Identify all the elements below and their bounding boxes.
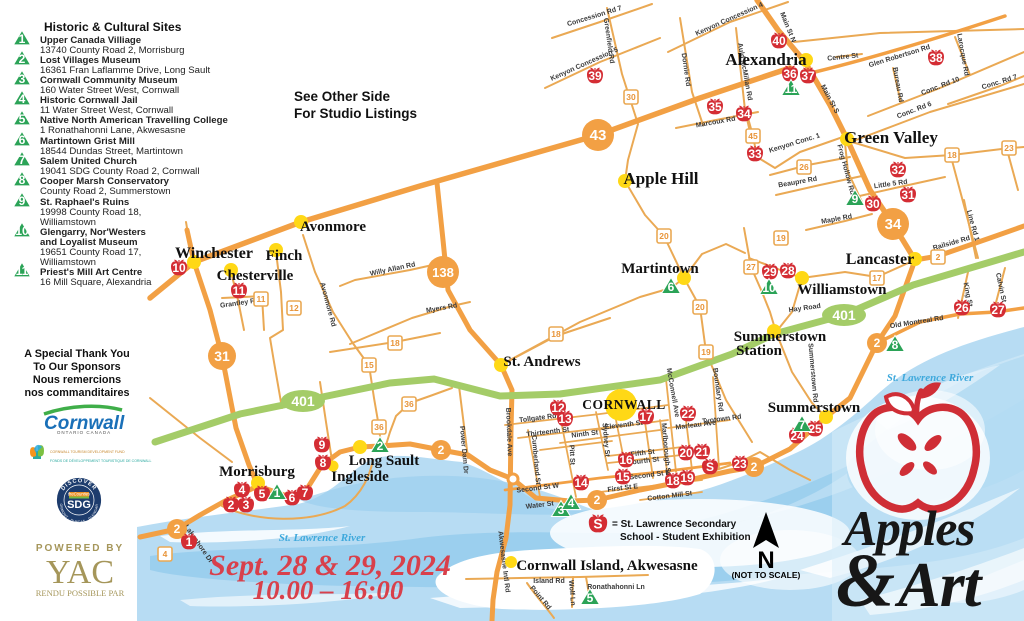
svg-text:Avonmore: Avonmore [300, 219, 366, 235]
svg-text:Williamstown: Williamstown [798, 282, 888, 298]
svg-text:1: 1 [19, 32, 26, 46]
svg-text:2: 2 [751, 460, 758, 474]
svg-text:2: 2 [594, 493, 601, 507]
svg-text:2: 2 [874, 336, 881, 350]
svg-text:26: 26 [955, 301, 969, 315]
svg-text:Winchester: Winchester [175, 245, 253, 262]
svg-text:Ronathahonni Ln: Ronathahonni Ln [587, 584, 645, 591]
svg-text:Station: Station [736, 343, 783, 359]
svg-text:19: 19 [680, 471, 694, 485]
svg-text:26: 26 [799, 162, 809, 172]
svg-text:St. Lawrence River: St. Lawrence River [887, 372, 974, 384]
svg-text:30: 30 [866, 197, 880, 211]
svg-text:Green Valley: Green Valley [844, 128, 938, 147]
svg-text:2: 2 [174, 522, 181, 536]
svg-text:17: 17 [639, 410, 653, 424]
svg-text:10: 10 [762, 281, 776, 295]
svg-text:138: 138 [432, 265, 454, 280]
svg-text:nos commanditaires: nos commanditaires [24, 387, 129, 399]
svg-text:Ingleside: Ingleside [331, 469, 389, 485]
svg-text:Nous remercions: Nous remercions [33, 374, 121, 386]
svg-text:FONDS DE DÉVELOPPEMENT TOURIST: FONDS DE DÉVELOPPEMENT TOURISTIQUE DE CO… [50, 458, 151, 463]
svg-text:2: 2 [377, 439, 384, 453]
svg-text:For Studio Listings: For Studio Listings [294, 106, 417, 121]
svg-text:11: 11 [233, 284, 246, 298]
svg-text:8: 8 [320, 456, 327, 470]
svg-text:5: 5 [19, 112, 26, 126]
svg-text:Summerstown: Summerstown [768, 400, 861, 416]
svg-text:39: 39 [588, 69, 602, 83]
svg-text:29: 29 [763, 265, 777, 279]
svg-text:Finch: Finch [266, 248, 303, 264]
svg-text:CORNWALL TOURISM DEVELOPMENT F: CORNWALL TOURISM DEVELOPMENT FUND [50, 450, 125, 454]
svg-text:2: 2 [228, 498, 235, 512]
svg-text:34: 34 [885, 216, 902, 233]
svg-text:23: 23 [733, 457, 747, 471]
svg-text:Martintown: Martintown [621, 261, 699, 277]
svg-text:31: 31 [214, 348, 230, 364]
svg-text:1 Ronathahonni Lane, Akwesasne: 1 Ronathahonni Lane, Akwesasne [40, 125, 186, 136]
svg-text:To Our Sponsors: To Our Sponsors [33, 361, 120, 373]
svg-text:5: 5 [587, 591, 594, 605]
svg-text:13: 13 [558, 412, 572, 426]
svg-text:20: 20 [695, 302, 705, 312]
svg-text:20: 20 [679, 446, 693, 460]
svg-text:SDG: SDG [67, 499, 91, 511]
svg-text:27: 27 [991, 303, 1005, 317]
svg-text:35: 35 [708, 100, 722, 114]
svg-text:10.00 – 16:00: 10.00 – 16:00 [253, 575, 404, 605]
svg-text:4: 4 [163, 549, 168, 559]
svg-text:A Special Thank You: A Special Thank You [24, 348, 129, 360]
svg-text:2: 2 [438, 443, 445, 457]
svg-text:18: 18 [947, 150, 957, 160]
svg-text:6: 6 [668, 280, 675, 294]
svg-text:S: S [593, 517, 602, 532]
svg-text:4: 4 [239, 483, 246, 497]
svg-text:33: 33 [748, 147, 762, 161]
svg-text:43: 43 [590, 127, 607, 144]
svg-text:CORNWALL: CORNWALL [582, 397, 666, 412]
svg-text:St. Andrews: St. Andrews [503, 354, 580, 370]
svg-text:37: 37 [801, 69, 815, 83]
svg-text:= St. Lawrence Secondary: = St. Lawrence Secondary [612, 519, 737, 530]
svg-text:21: 21 [695, 445, 709, 459]
svg-text:34: 34 [737, 107, 751, 121]
svg-text:401: 401 [291, 393, 315, 409]
svg-text:10: 10 [172, 261, 186, 275]
svg-text:7: 7 [799, 418, 806, 432]
svg-text:1: 1 [274, 486, 281, 500]
svg-text:Historic & Cultural Sites: Historic & Cultural Sites [44, 20, 182, 34]
svg-text:3: 3 [19, 72, 26, 86]
svg-text:8: 8 [19, 173, 26, 187]
svg-text:Chesterville: Chesterville [217, 268, 294, 284]
svg-text:30: 30 [626, 92, 636, 102]
svg-text:36: 36 [783, 67, 797, 81]
svg-text:38: 38 [929, 51, 943, 65]
svg-text:15: 15 [364, 360, 374, 370]
svg-text:Long Sault: Long Sault [349, 453, 419, 469]
svg-text:Apple Hill: Apple Hill [623, 169, 698, 188]
svg-text:28: 28 [781, 264, 795, 278]
svg-text:2: 2 [936, 252, 941, 262]
svg-text:19: 19 [776, 233, 786, 243]
svg-text:6: 6 [19, 133, 26, 147]
svg-text:St. Lawrence River: St. Lawrence River [279, 532, 366, 544]
svg-text:40: 40 [772, 34, 786, 48]
svg-text:&: & [836, 539, 895, 621]
svg-text:County Road 2, Summerstown: County Road 2, Summerstown [40, 186, 171, 197]
svg-text:36: 36 [374, 422, 384, 432]
svg-text:Island Rd: Island Rd [533, 578, 565, 585]
svg-text:7: 7 [19, 153, 26, 167]
svg-text:19: 19 [701, 347, 711, 357]
svg-text:10: 10 [15, 224, 29, 238]
svg-text:See Other Side: See Other Side [294, 89, 391, 104]
svg-text:theCounties: theCounties [68, 492, 91, 497]
svg-text:4: 4 [19, 92, 26, 106]
svg-text:(NOT TO SCALE): (NOT TO SCALE) [732, 570, 801, 580]
svg-text:45: 45 [748, 131, 758, 141]
svg-text:27: 27 [746, 262, 756, 272]
svg-text:36: 36 [404, 399, 414, 409]
svg-text:7: 7 [302, 486, 309, 500]
svg-text:9: 9 [319, 438, 326, 452]
svg-text:4: 4 [568, 496, 575, 510]
svg-text:16 Mill Square, Alexandria: 16 Mill Square, Alexandria [40, 277, 152, 288]
svg-text:16: 16 [619, 453, 633, 467]
svg-text:Cornwall Island, Akwesasne: Cornwall Island, Akwesasne [516, 558, 698, 574]
svg-text:ONTARIO CANADA: ONTARIO CANADA [57, 430, 111, 435]
svg-text:8: 8 [892, 338, 899, 352]
svg-text:11: 11 [257, 294, 266, 304]
svg-text:14: 14 [574, 476, 588, 490]
svg-text:9: 9 [19, 194, 26, 208]
svg-text:9: 9 [852, 192, 859, 206]
svg-text:15: 15 [616, 470, 630, 484]
svg-text:6: 6 [289, 491, 296, 505]
svg-text:18: 18 [666, 474, 680, 488]
svg-text:1: 1 [186, 535, 193, 549]
svg-text:2: 2 [19, 52, 26, 66]
svg-text:18: 18 [390, 338, 400, 348]
svg-text:11: 11 [785, 82, 798, 96]
svg-text:YAC: YAC [46, 554, 114, 591]
svg-text:22: 22 [681, 407, 695, 421]
svg-text:School - Student Exhibition: School - Student Exhibition [620, 532, 751, 543]
svg-text:31: 31 [901, 188, 915, 202]
svg-text:11: 11 [16, 264, 29, 278]
svg-text:5: 5 [259, 487, 266, 501]
svg-text:23: 23 [1004, 143, 1014, 153]
svg-text:12: 12 [289, 303, 299, 313]
svg-text:32: 32 [891, 163, 905, 177]
svg-text:Lancaster: Lancaster [846, 251, 914, 268]
svg-text:RENDU POSSIBLE PAR: RENDU POSSIBLE PAR [36, 588, 125, 598]
svg-text:18: 18 [551, 329, 561, 339]
svg-text:POWERED BY: POWERED BY [36, 543, 124, 554]
svg-text:401: 401 [832, 307, 856, 323]
svg-text:3: 3 [243, 498, 250, 512]
svg-text:Morrisburg: Morrisburg [219, 464, 295, 480]
svg-text:Pitt St: Pitt St [567, 445, 575, 466]
svg-text:20: 20 [659, 231, 669, 241]
svg-text:S: S [706, 460, 714, 474]
svg-text:Art: Art [894, 549, 984, 620]
